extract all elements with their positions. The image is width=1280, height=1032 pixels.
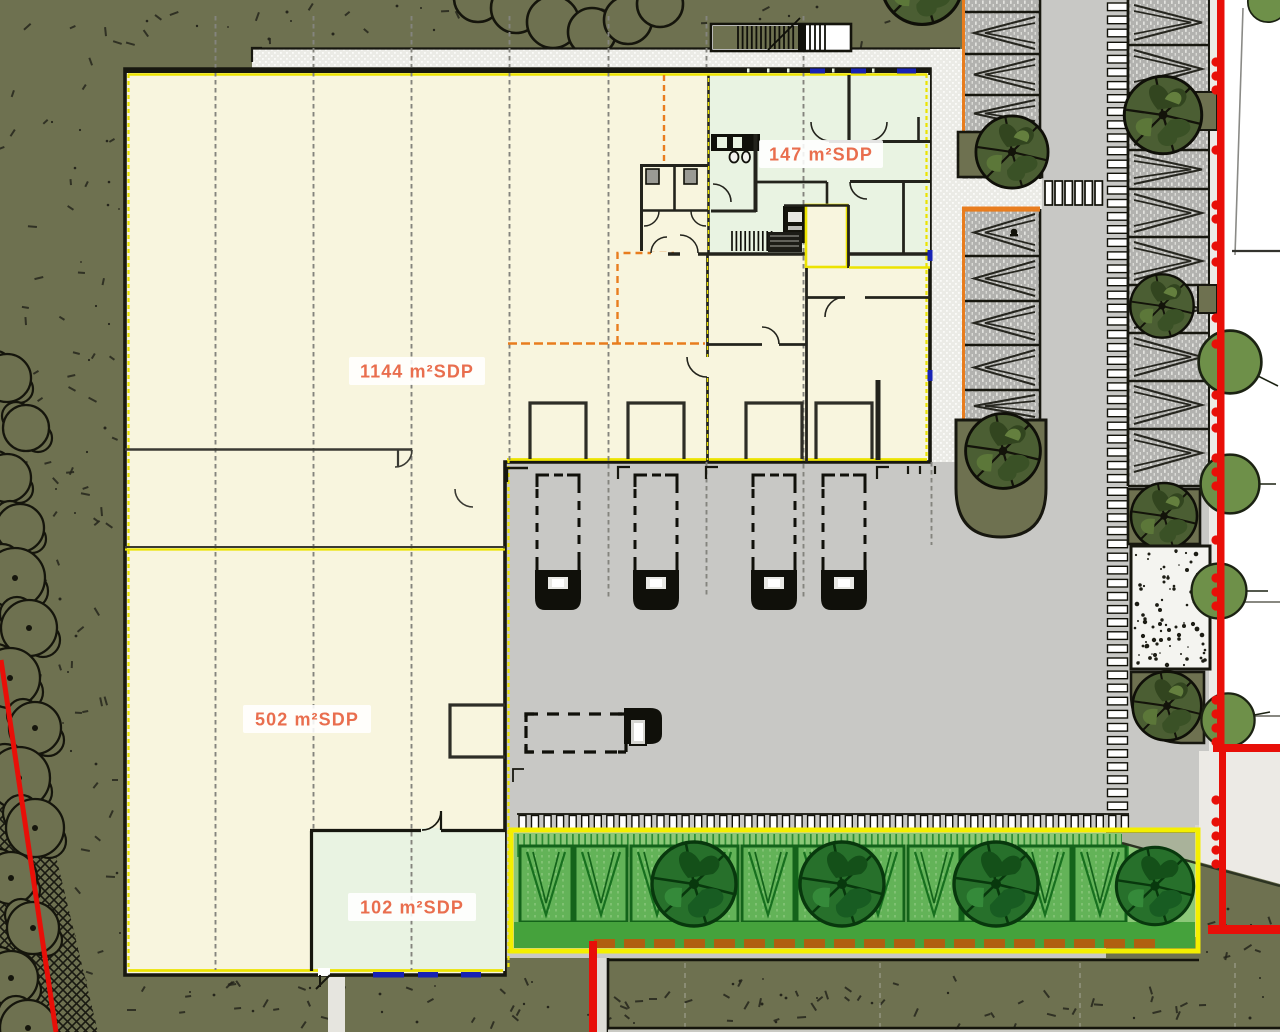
svg-text:1144 m²SDP: 1144 m²SDP [360, 362, 474, 382]
svg-text:147 m²SDP: 147 m²SDP [769, 145, 873, 165]
svg-text:502 m²SDP: 502 m²SDP [255, 710, 359, 730]
svg-text:102 m²SDP: 102 m²SDP [360, 898, 464, 918]
